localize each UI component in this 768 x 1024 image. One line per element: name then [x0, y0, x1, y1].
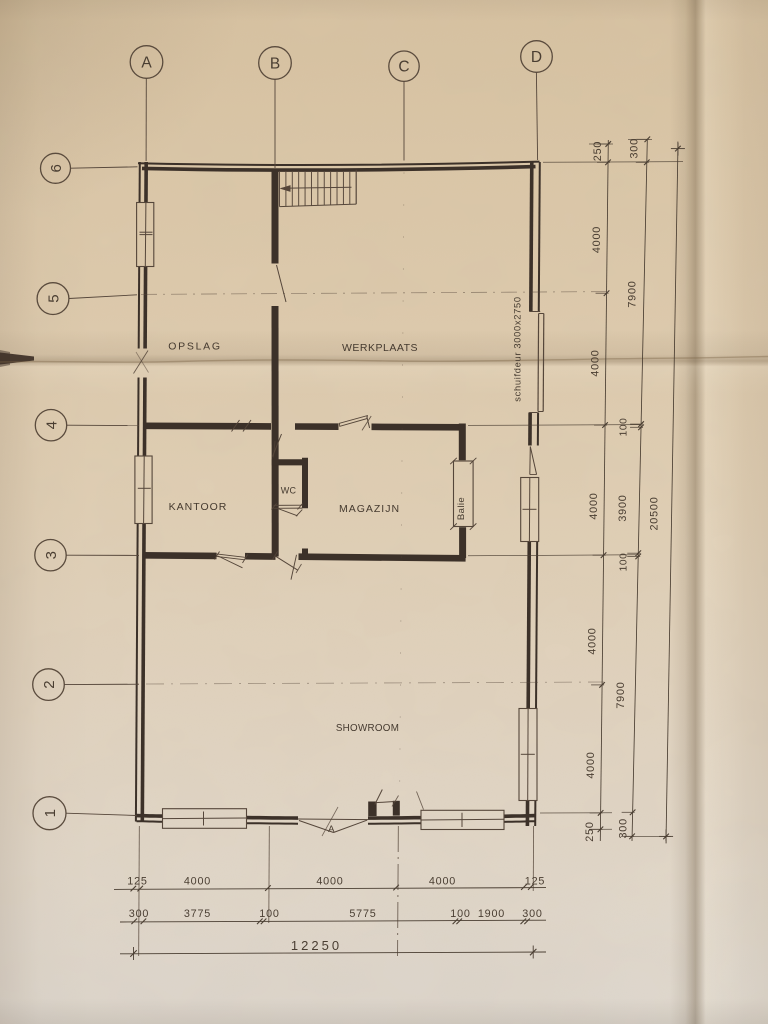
svg-text:Balie: Balie — [456, 497, 467, 520]
svg-text:4000: 4000 — [591, 226, 603, 253]
svg-text:4000: 4000 — [588, 492, 600, 519]
svg-text:125: 125 — [525, 875, 545, 887]
svg-text:2: 2 — [41, 680, 58, 688]
svg-text:D: D — [531, 49, 542, 66]
svg-text:4000: 4000 — [586, 627, 598, 654]
svg-text:250: 250 — [584, 821, 596, 841]
svg-text:A: A — [141, 55, 152, 72]
svg-text:1900: 1900 — [478, 908, 505, 920]
svg-text:300: 300 — [629, 138, 641, 158]
svg-text:schuifdeur 3000x2750: schuifdeur 3000x2750 — [513, 296, 523, 402]
svg-text:4000: 4000 — [429, 875, 456, 887]
svg-text:4000: 4000 — [184, 875, 211, 887]
svg-text:12250: 12250 — [291, 938, 342, 953]
svg-text:7900: 7900 — [627, 280, 639, 307]
svg-text:C: C — [398, 59, 409, 76]
svg-text:4000: 4000 — [589, 349, 601, 376]
svg-text:300: 300 — [129, 908, 149, 920]
svg-text:20500: 20500 — [649, 496, 661, 530]
svg-text:KANTOOR: KANTOOR — [169, 501, 228, 513]
svg-text:MAGAZIJN: MAGAZIJN — [339, 503, 400, 515]
svg-text:5: 5 — [46, 294, 63, 302]
svg-text:1: 1 — [42, 809, 59, 817]
svg-text:6: 6 — [48, 164, 65, 172]
svg-text:OPSLAG: OPSLAG — [168, 341, 221, 353]
svg-text:100: 100 — [450, 908, 470, 920]
svg-text:3900: 3900 — [617, 494, 629, 521]
svg-text:300: 300 — [618, 818, 630, 838]
svg-text:4000: 4000 — [316, 875, 343, 887]
svg-text:SHOWROOM: SHOWROOM — [336, 723, 399, 734]
svg-text:250: 250 — [592, 141, 604, 161]
svg-text:B: B — [270, 56, 280, 73]
svg-text:WC: WC — [281, 486, 297, 496]
svg-text:5775: 5775 — [349, 908, 376, 920]
svg-text:100: 100 — [619, 553, 630, 572]
svg-text:300: 300 — [522, 908, 542, 920]
svg-text:3: 3 — [43, 551, 60, 559]
svg-text:3775: 3775 — [184, 908, 211, 920]
svg-text:4000: 4000 — [585, 751, 597, 778]
svg-text:100: 100 — [259, 908, 279, 920]
svg-text:100: 100 — [619, 418, 630, 437]
svg-text:WERKPLAATS: WERKPLAATS — [342, 342, 418, 354]
svg-text:7900: 7900 — [615, 681, 627, 708]
svg-text:4: 4 — [44, 421, 61, 429]
svg-text:125: 125 — [127, 875, 147, 887]
svg-text:A: A — [328, 824, 335, 835]
